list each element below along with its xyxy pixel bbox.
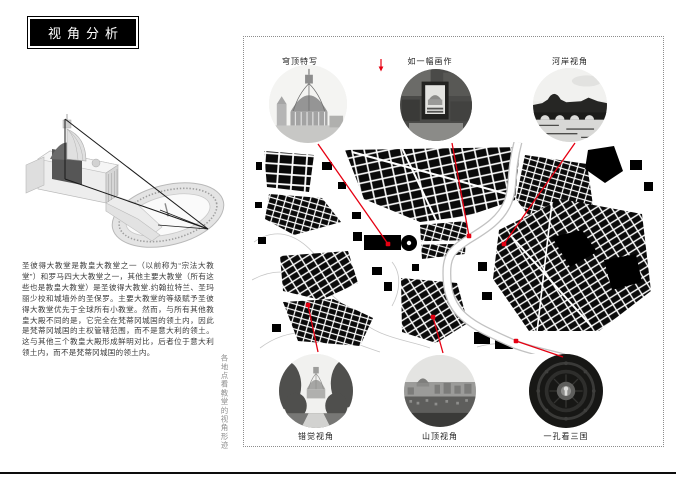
photo-hilltop-view — [404, 355, 476, 427]
page-title: 视角分析 — [30, 19, 136, 46]
photo-illusion-view — [279, 354, 353, 428]
footer-rule — [0, 472, 676, 474]
poster-page: { "page": { "title": "视角分析" }, "left_col… — [0, 0, 676, 479]
photo-dome-closeup — [269, 65, 347, 143]
viewpoint-label-riverbank: 河岸视角 — [552, 56, 588, 67]
rome-figure-ground-map — [252, 142, 658, 354]
basilica-axonometric-illustration — [10, 106, 228, 258]
photo-framed-view — [400, 69, 472, 141]
page-title-box: 视角分析 — [27, 16, 139, 49]
viewpoint-label-dome-closeup: 穹顶特写 — [282, 56, 318, 67]
vertical-caption: 各地点看教堂的视角形迹 — [219, 354, 230, 464]
photo-riverbank-view — [533, 68, 607, 142]
viewpoint-label-keyhole: 一孔看三国 — [544, 431, 589, 442]
viewpoint-label-hilltop: 山顶视角 — [422, 431, 458, 442]
basilica-description-text: 圣彼得大教堂是教皇大教堂之一（以前称为“宗法大教堂”）和罗马四大大教堂之一，其他… — [22, 261, 214, 359]
viewpoint-label-like-a-painting: 如一幅画作 — [408, 56, 453, 67]
photo-keyhole-view — [529, 354, 603, 428]
viewpoint-label-illusion: 错觉视角 — [298, 431, 334, 442]
st-peters-footprint — [353, 232, 417, 251]
